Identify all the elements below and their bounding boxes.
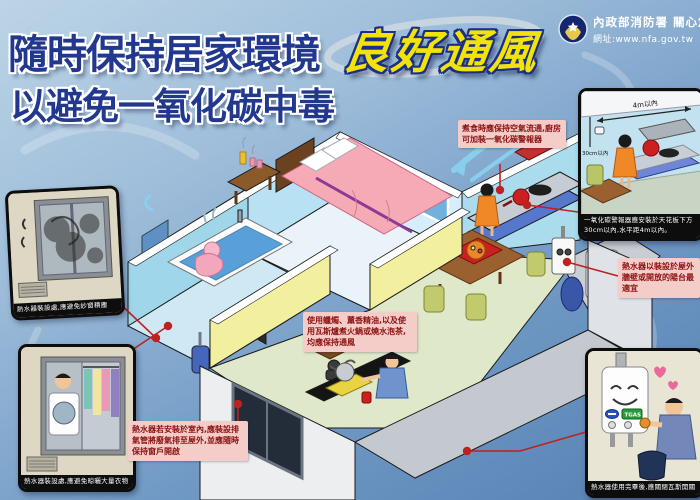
heater-maintenance-photo: TGAS [588, 351, 700, 481]
note-candles-ventilation: 使用蠟燭、薰香精油,以及使用瓦斯爐煮火鍋或燒水泡茶,均應保持通風 [303, 312, 417, 352]
callout-co-alarm: 4m以內 30cm以內 一氧化碳警報器應安裝於天花板下方30cm以內,水平距4m… [578, 88, 700, 241]
agency-header: 內政部消防署 關心您 網址:www.nfa.gov.tw [558, 14, 700, 45]
co-alarm-photo: 4m以內 30cm以內 [581, 91, 700, 215]
gas-cylinder [561, 277, 583, 311]
dusty-screen-photo [8, 188, 122, 304]
agency-website: 網址:www.nfa.gov.tw [593, 32, 700, 45]
poster-root: 隨時保持居家環境 良好通風 以避免一氧化碳中毒 內政部消防署 關心您 網址:ww… [0, 0, 700, 500]
poster-title-line2: 以避免一氧化碳中毒 [10, 76, 334, 130]
callout-clothes: 熱水器裝設處,應避免晾曬大量衣物 [18, 344, 136, 492]
poster-title-highlight: 良好通風 [339, 16, 544, 82]
dimension-label-30cm: 30cm以內 [582, 149, 608, 157]
nfa-logo-icon [558, 14, 588, 44]
drying-clothes-photo [21, 347, 133, 475]
callout-gas-valve: TGAS 熱水器使用完畢後,應關閉瓦斯開關 [585, 348, 700, 498]
callout-screen-dust: 熱水器裝設處,應避免紗窗積塵 [5, 185, 126, 321]
note-outdoor-heater: 熱水器以裝設於屋外牆壁或開放的陽台最適宜 [618, 258, 700, 298]
note-indoor-heater: 熱水器若安裝於室內,應裝設排氣管將廢氣排至屋外,並應隨時保持窗戶開啟 [128, 421, 248, 461]
callout-gas-valve-caption: 熱水器使用完畢後,應關閉瓦斯開關 [588, 481, 700, 495]
poster-title-line1: 隨時保持居家環境 [8, 22, 320, 80]
callout-co-alarm-caption: 一氧化碳警報器應安裝於天花板下方30cm以內,水平距4m以內。 [581, 214, 700, 238]
heater-brand-label: TGAS [625, 413, 642, 419]
callout-clothes-caption: 熱水器裝設處,應避免晾曬大量衣物 [21, 475, 133, 489]
note-cooking-ventilation: 煮食時應保持空氣流通,廚房可加裝一氧化碳警報器 [458, 120, 566, 148]
agency-name: 內政部消防署 關心您 [593, 14, 700, 30]
